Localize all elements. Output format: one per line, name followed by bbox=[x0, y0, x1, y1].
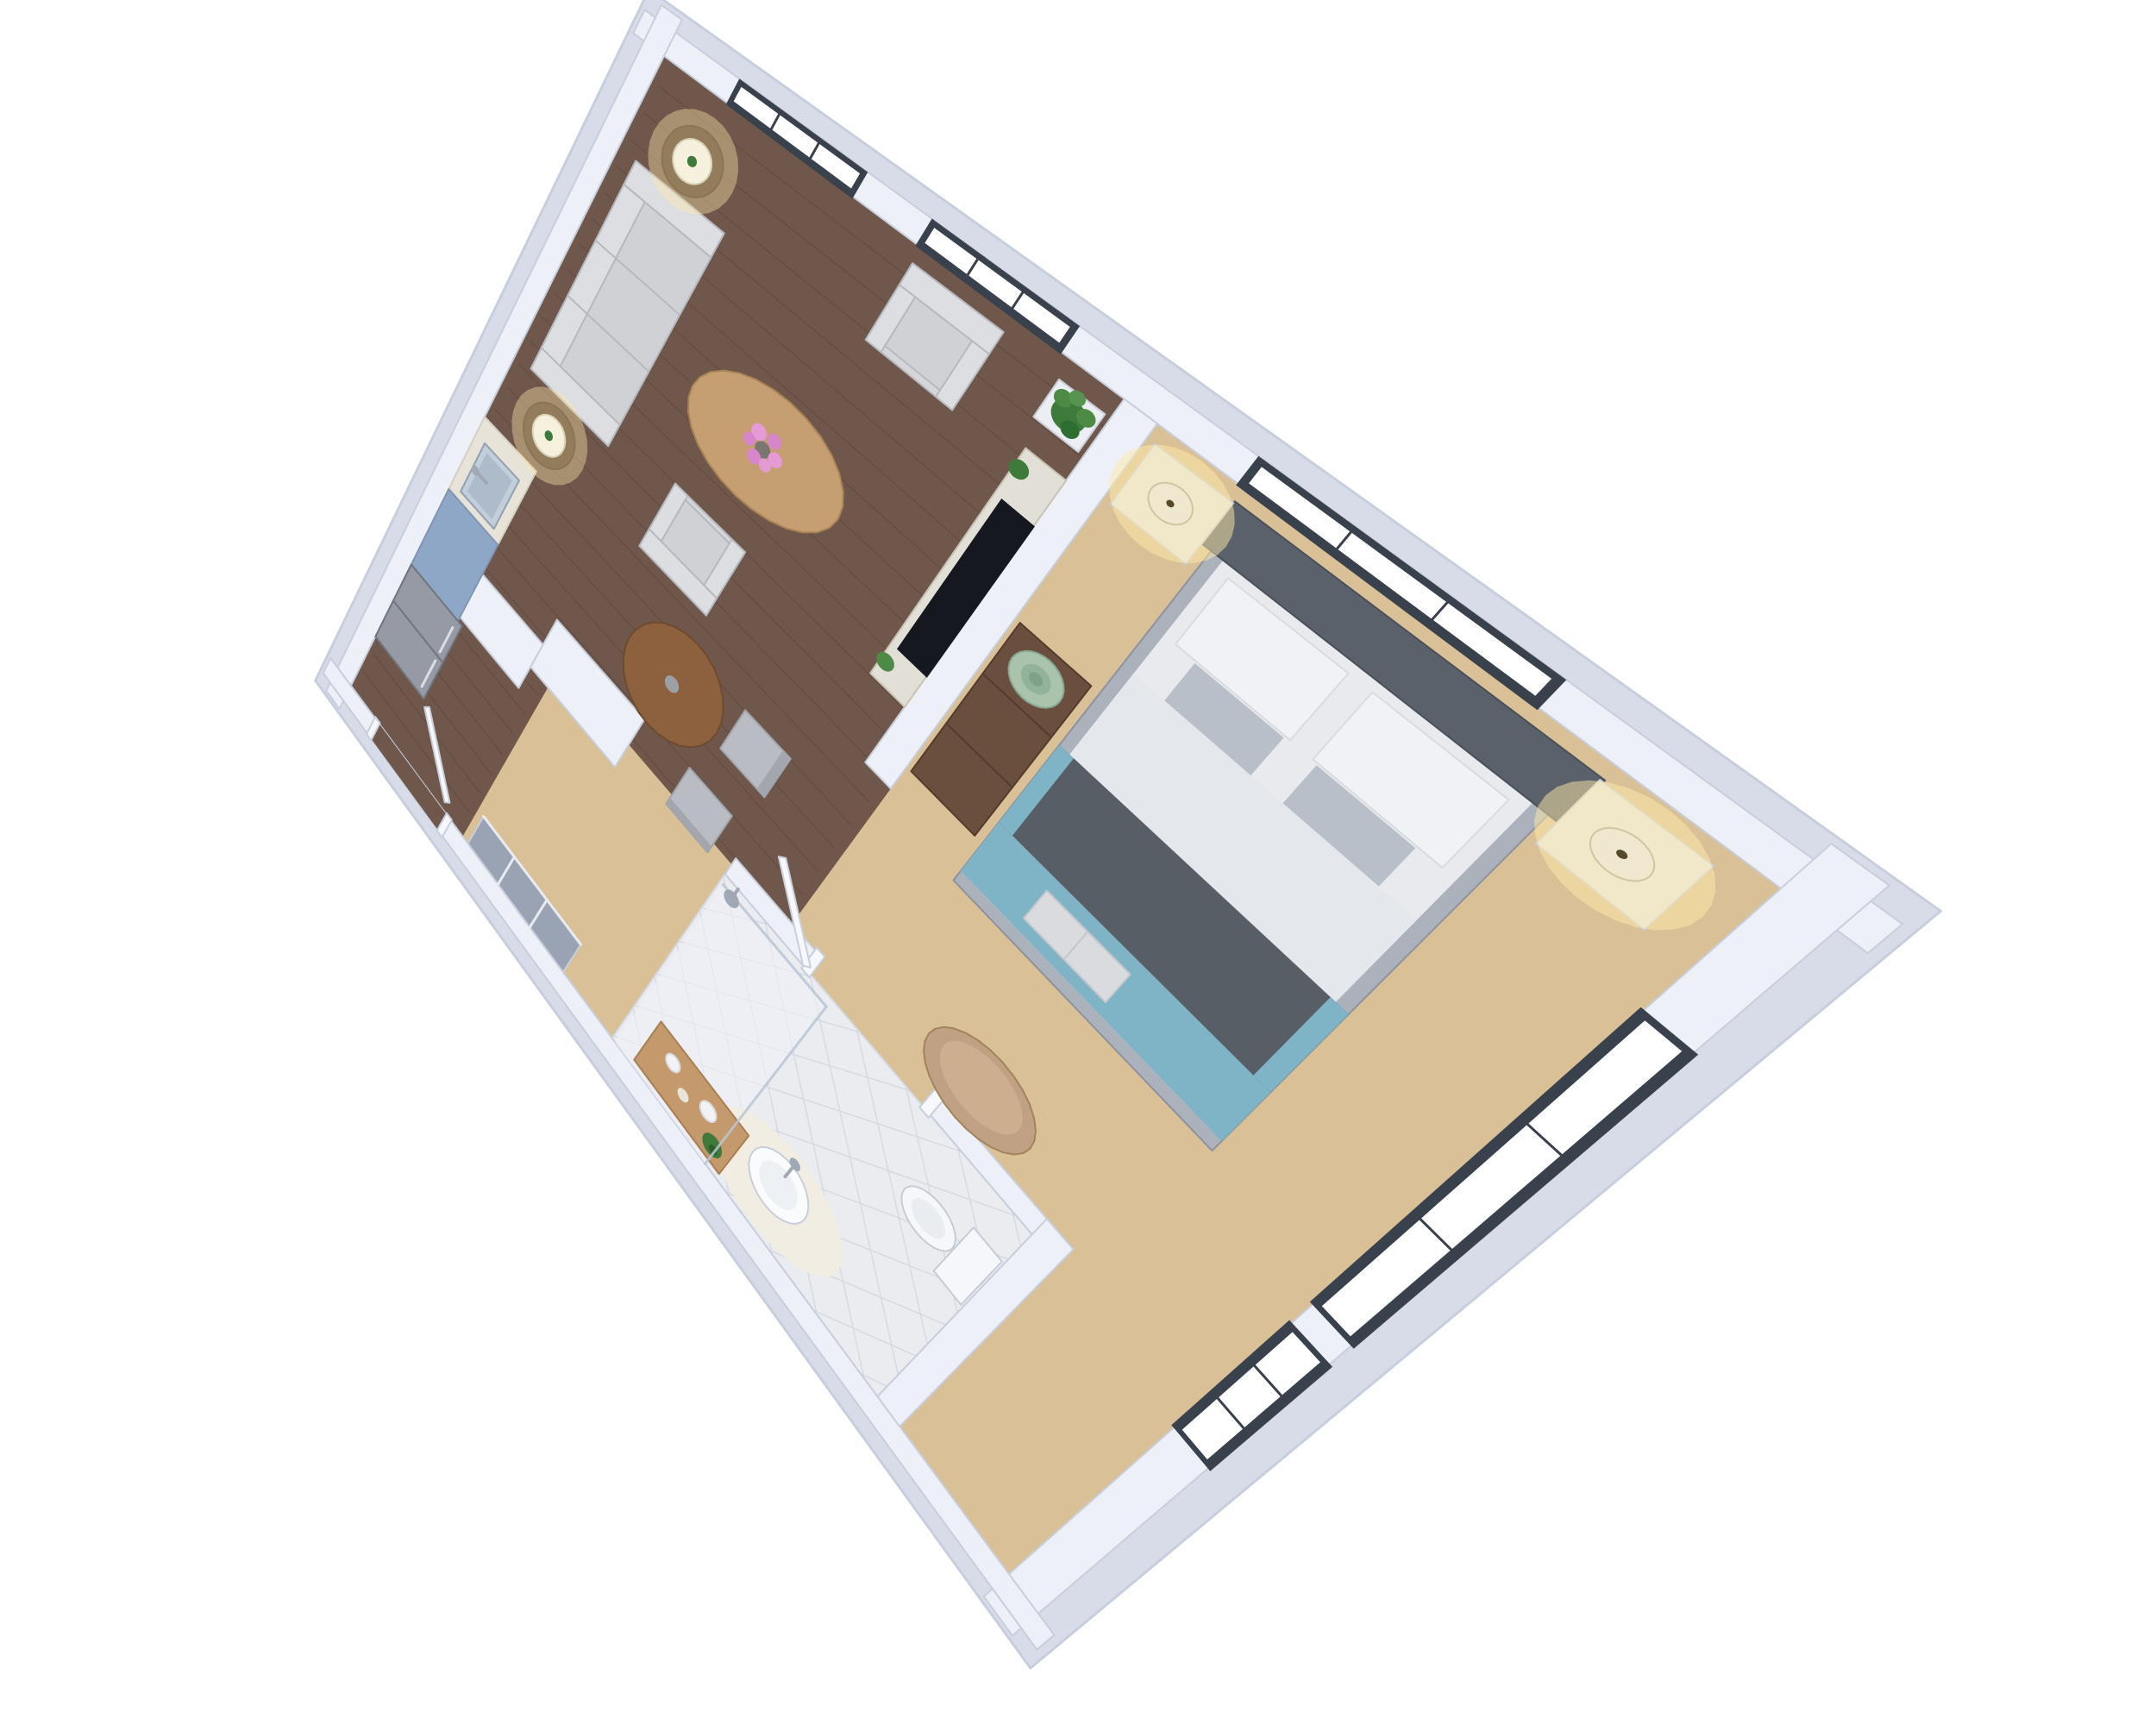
floorplan-render bbox=[0, 0, 2156, 1725]
floorplan-scene bbox=[0, 0, 2156, 1725]
